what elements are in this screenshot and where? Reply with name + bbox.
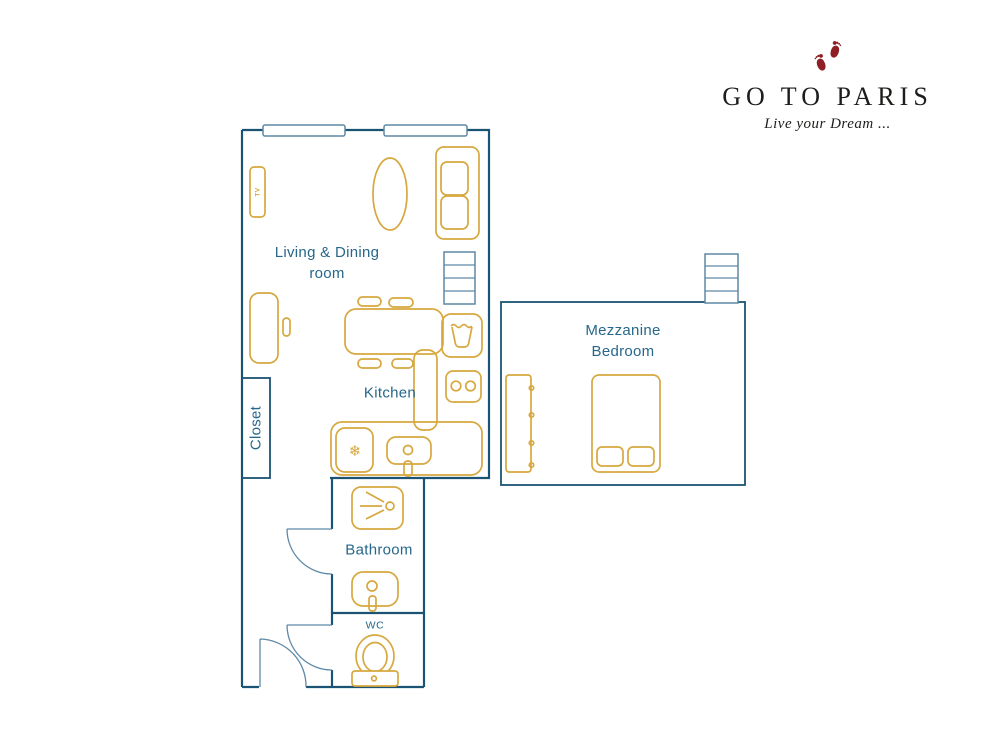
footprints-icon (805, 38, 851, 78)
label-closet: Closet (246, 406, 267, 450)
label-living-line1: Living & Dining (275, 242, 380, 263)
stairs (705, 254, 738, 303)
shower (352, 487, 403, 529)
counter-peninsula (414, 350, 437, 430)
sofa-cushion-bottom (441, 196, 468, 229)
label-living-dining-room: Living & Dining room (275, 242, 380, 284)
brand-logo: GO TO PARIS Live your Dream ... (705, 38, 950, 133)
label-mezzanine-bedroom: Mezzanine Bedroom (585, 320, 660, 362)
double-bed (592, 375, 660, 472)
sink-drain (404, 446, 413, 455)
bath-sink-drain (367, 581, 377, 591)
shower-spray-lines (360, 492, 384, 519)
washer-tub-rim (451, 325, 472, 328)
armchair (250, 293, 290, 363)
stool-4 (392, 359, 413, 368)
label-wc: WC (366, 619, 385, 634)
toilet (352, 635, 398, 686)
burner-left (451, 381, 461, 391)
snowflake-icon: ❄ (349, 442, 362, 460)
shower-tray (352, 487, 403, 529)
stool-3 (358, 359, 381, 368)
sofa (436, 147, 479, 239)
brand-tagline: Live your Dream ... (705, 116, 950, 133)
armchair-seat (250, 293, 278, 363)
bathroom-door (287, 529, 332, 574)
washer-body (442, 314, 482, 357)
pillow-left (597, 447, 623, 466)
bath-sink-tap (369, 596, 376, 611)
doors (260, 529, 332, 687)
cooktop (446, 371, 481, 402)
label-living-line2: room (275, 263, 380, 284)
label-bathroom: Bathroom (345, 540, 412, 561)
sink-basin (387, 437, 431, 464)
mezzanine-furniture (506, 375, 660, 472)
stool-2 (389, 298, 413, 307)
entrance-door (260, 639, 306, 687)
radiator-shelf (444, 252, 475, 304)
label-kitchen: Kitchen (364, 383, 416, 404)
armchair-side (283, 318, 290, 336)
label-mezzanine-line2: Bedroom (585, 341, 660, 362)
bathroom-fixtures (352, 487, 403, 686)
fridge: ❄ (336, 428, 373, 472)
pillow-right (628, 447, 654, 466)
kitchen-table (345, 309, 443, 354)
window-right (384, 125, 467, 136)
window-left (263, 125, 345, 136)
toilet-tank (352, 671, 398, 686)
wc-door (287, 625, 332, 670)
brand-name: GO TO PARIS (705, 82, 950, 112)
sofa-cushion-top (441, 162, 468, 195)
washing-machine (442, 314, 482, 357)
bed-frame (592, 375, 660, 472)
toilet-bowl-inner (363, 643, 387, 672)
label-tv: TV (253, 187, 262, 196)
footprint-right (828, 40, 842, 58)
washer-tub-icon (452, 327, 472, 347)
wardrobe-body (506, 375, 531, 472)
oval-dining-table (373, 158, 407, 230)
shower-head (386, 502, 394, 510)
bathroom-sink (352, 572, 398, 611)
burner-right (466, 381, 476, 391)
kitchen-sink (387, 437, 431, 476)
stool-1 (358, 297, 381, 306)
footprint-left (813, 53, 827, 72)
wardrobe (506, 375, 534, 472)
label-mezzanine-line1: Mezzanine (585, 320, 660, 341)
walls (242, 130, 745, 687)
